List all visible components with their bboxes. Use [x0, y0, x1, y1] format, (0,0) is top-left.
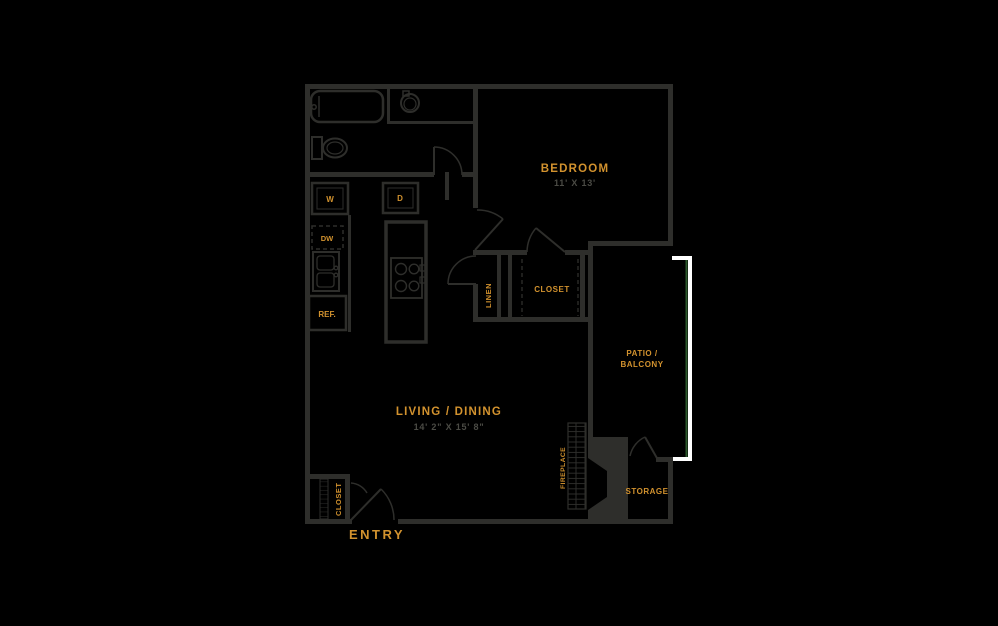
- living-label: LIVING / DINING: [396, 406, 502, 418]
- wall-entry-closet-right: [345, 479, 350, 520]
- bedroom-door-arc: [477, 210, 503, 219]
- bathtub-knob: [312, 105, 316, 109]
- wall-corridor-stub: [445, 172, 449, 200]
- wall-bedroom-left: [473, 84, 478, 208]
- patio-railing-bottom-cap: [672, 457, 692, 461]
- storage-door-leaf: [645, 437, 658, 460]
- entry-door-arc: [381, 489, 394, 520]
- kitchen-counter-edge: [348, 215, 351, 332]
- bathroom-door-arc: [434, 147, 462, 175]
- wall-linen-divider-1: [497, 255, 501, 320]
- linen-door-arc: [448, 256, 476, 284]
- wall-storage-left: [623, 437, 628, 524]
- refrigerator-label: REF.: [318, 310, 335, 319]
- storage-label: STORAGE: [626, 487, 669, 496]
- entry-label: ENTRY: [349, 527, 405, 542]
- wall-hallcloset-top-right: [565, 250, 593, 255]
- wall-closet-right: [580, 255, 585, 320]
- closet-door-arc: [527, 228, 536, 252]
- wall-vanity-counter: [387, 121, 473, 124]
- wall-bottom-left: [305, 519, 352, 524]
- wall-hallcloset-top-left: [473, 250, 527, 255]
- patio-railing-accent: [686, 260, 688, 457]
- closet-label: CLOSET: [534, 285, 569, 294]
- stove-burner-4: [409, 281, 419, 291]
- entry-closet-door-arc: [351, 483, 367, 493]
- kitchen-sink-knob: [334, 273, 338, 277]
- living-dims: 14' 2" X 15' 8": [414, 422, 485, 432]
- fireplace-label: FIREPLACE: [560, 447, 567, 489]
- bathroom-sink-basin: [404, 98, 416, 110]
- bedroom-dims: 11' X 13': [554, 178, 596, 188]
- entry-closet-label: CLOSET: [334, 483, 343, 516]
- wall-bedroom-bottom: [588, 241, 673, 246]
- kitchen-sink-basin-top: [317, 256, 334, 270]
- kitchen-sink-faucet: [334, 266, 338, 270]
- wall-bathroom-bottom: [305, 172, 434, 177]
- wall-closet-bottom: [473, 317, 590, 322]
- wall-bedroom-right: [668, 84, 673, 246]
- closet-door-leaf: [536, 228, 565, 252]
- wall-bottom-main: [398, 519, 673, 524]
- dryer-label: D: [397, 194, 403, 203]
- bedroom-door-leaf: [475, 219, 503, 250]
- fireplace-hearth-grid: [568, 423, 586, 509]
- entry-closet-rod-strip: [320, 479, 328, 519]
- wall-storage-right: [668, 457, 673, 524]
- wall-entry-closet-top: [305, 474, 350, 479]
- wall-patio-left: [588, 241, 593, 442]
- floorplan-canvas: BEDROOM 11' X 13' LIVING / DINING 14' 2"…: [0, 0, 998, 626]
- entry-door-leaf: [351, 489, 381, 520]
- wall-vanity-divider: [387, 87, 390, 124]
- stove-burner-1: [396, 264, 407, 275]
- wall-linen-left: [473, 284, 478, 322]
- stove-burner-2: [409, 264, 419, 274]
- wall-top: [305, 84, 673, 89]
- bathtub: [311, 91, 383, 122]
- storage-door-arc: [630, 437, 645, 456]
- linen-label: LINEN: [484, 283, 493, 308]
- toilet-bowl-inner: [327, 142, 343, 154]
- dishwasher-label: DW: [321, 234, 334, 243]
- stove-box: [391, 258, 422, 298]
- bedroom-label: BEDROOM: [541, 163, 609, 175]
- toilet-tank: [312, 137, 322, 159]
- kitchen-sink-basin-bottom: [317, 273, 334, 287]
- floorplan-svg: BEDROOM 11' X 13' LIVING / DINING 14' 2"…: [0, 0, 998, 626]
- wall-fireplace-top: [588, 437, 628, 442]
- patio-label-line2: BALCONY: [620, 360, 663, 369]
- patio-railing-right: [688, 256, 692, 461]
- patio-label-line1: PATIO /: [626, 349, 657, 358]
- washer-label: W: [326, 195, 334, 204]
- stove-burner-3: [396, 281, 407, 292]
- wall-linen-divider-2: [508, 255, 512, 320]
